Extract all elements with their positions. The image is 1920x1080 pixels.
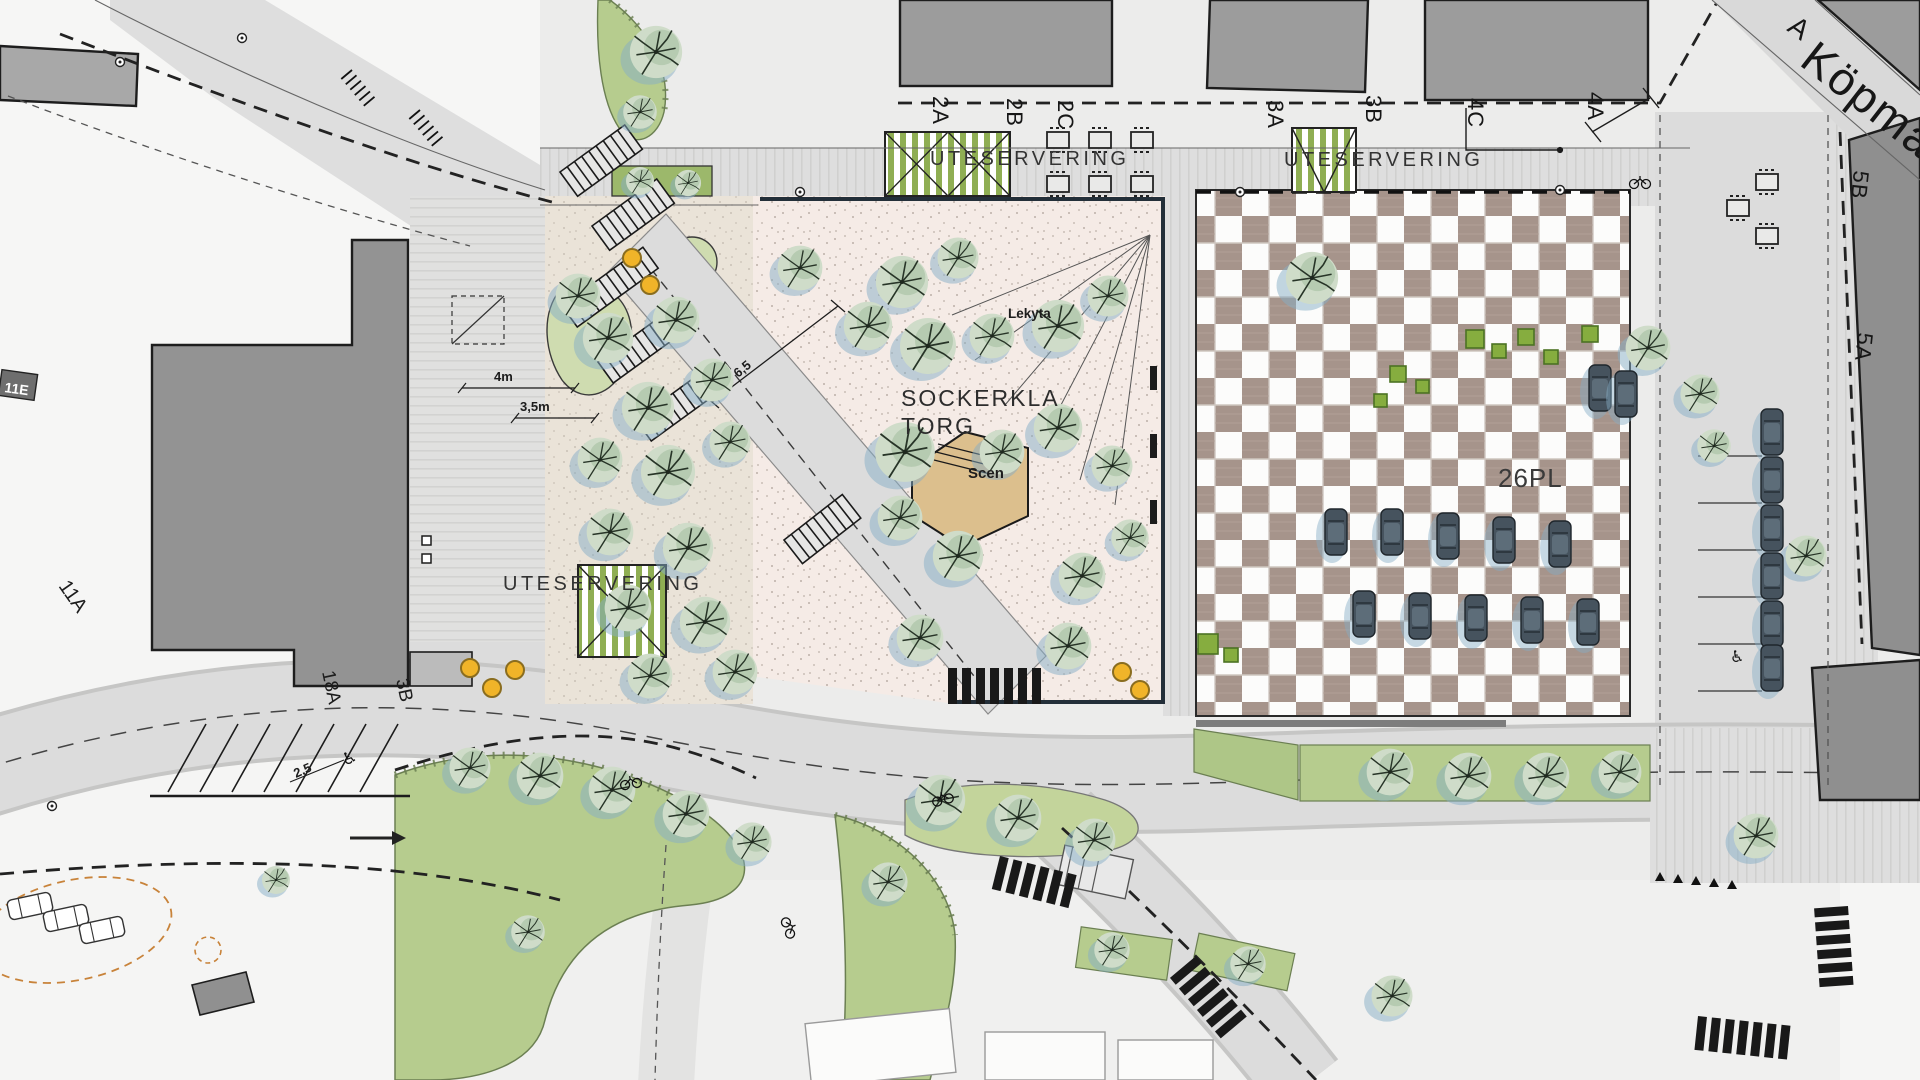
tree-trunk (956, 554, 960, 558)
car-icon (1752, 645, 1784, 699)
building-northwest (0, 46, 138, 106)
tree-trunk (674, 318, 678, 322)
car-roof (1524, 611, 1540, 630)
car-roof (1764, 519, 1780, 538)
table-top (1047, 176, 1069, 192)
building-label-2a: 2A (928, 96, 953, 125)
bench-icon (1150, 366, 1157, 390)
table-top (1089, 132, 1111, 148)
tree-trunk (1092, 838, 1095, 841)
tree-trunk (750, 840, 753, 843)
play-dot (506, 661, 524, 679)
crosswalk-stripe (948, 668, 957, 704)
play-dot (483, 679, 501, 697)
planter-box (1224, 648, 1238, 662)
tree-trunk (1754, 834, 1758, 838)
tree-trunk (610, 788, 614, 792)
crosswalk-stripe (990, 668, 999, 704)
car-icon (1372, 509, 1404, 563)
building-label-4a: 4A (1583, 92, 1608, 121)
lamp-icon (796, 188, 805, 197)
tree-trunk (900, 280, 904, 284)
tree-trunk (1129, 537, 1132, 540)
car-roof (1764, 423, 1780, 442)
outdoor-seating-label-2: UTESERVERING (1284, 149, 1483, 171)
planter-box (1390, 366, 1406, 382)
car-icon (1512, 597, 1544, 651)
tree-trunk (703, 620, 707, 624)
play-dot (1113, 663, 1131, 681)
car-roof (1496, 531, 1512, 550)
tree-trunk (626, 606, 630, 610)
tree-trunk (866, 324, 870, 328)
tree-trunk (733, 670, 737, 674)
outdoor-seating-label-3: UTESERVERING (503, 573, 702, 595)
tree-trunk (898, 516, 902, 520)
tree-trunk (710, 378, 713, 381)
table-set-icon (1089, 172, 1111, 196)
car-roof (1764, 471, 1780, 490)
table-top (1131, 132, 1153, 148)
car-roof (1468, 609, 1484, 628)
building-label-5a: 5A (1850, 331, 1878, 362)
building-north-2 (1207, 0, 1368, 92)
tree-trunk (918, 636, 922, 640)
lamp-dot (241, 37, 244, 40)
tree-trunk (1618, 770, 1621, 773)
planter-box (1416, 380, 1429, 393)
tree-trunk (1111, 949, 1114, 952)
car-roof (1592, 379, 1608, 398)
tree-trunk (639, 180, 641, 182)
car-icon (1540, 521, 1572, 575)
tree-trunk (1000, 450, 1004, 454)
planter-box (1544, 350, 1558, 364)
table-set-icon (1756, 170, 1778, 194)
crosswalk-stripe (1004, 668, 1013, 704)
tree-trunk (1466, 774, 1470, 778)
tree-trunk (606, 336, 610, 340)
car-roof (1552, 535, 1568, 554)
car-icon (1484, 517, 1516, 571)
tree-trunk (1698, 392, 1701, 395)
tree-trunk (1247, 963, 1250, 966)
dimension-label-35m: 3,5m (520, 399, 550, 414)
play-dot-icon (1131, 681, 1149, 699)
tree-trunk (1066, 644, 1070, 648)
tree-trunk (798, 266, 802, 270)
crosswalk-stripe (962, 668, 971, 704)
table-top (1089, 176, 1111, 192)
car-icon (1344, 591, 1376, 645)
wheelchair-icon-east: ♿ (1730, 649, 1744, 666)
car-roof (1440, 527, 1456, 546)
table-set-icon (1727, 196, 1749, 220)
lamp-dot (1239, 191, 1242, 194)
play-dot-icon (461, 659, 479, 677)
tree-trunk (1390, 994, 1393, 997)
plaza-name-line2: TORG (901, 413, 975, 439)
play-dot (1131, 681, 1149, 699)
tree-trunk (990, 334, 994, 338)
tree-trunk (686, 546, 690, 550)
outdoor-seating-label-1: UTESERVERING (930, 148, 1129, 170)
tree-trunk (538, 774, 542, 778)
play-dot-icon (641, 276, 659, 294)
car-icon (1400, 593, 1432, 647)
car-roof (1328, 523, 1344, 542)
table-set-icon (1047, 172, 1069, 196)
car-icon (1568, 599, 1600, 653)
lamp-icon (48, 802, 57, 811)
building-label-2b: 2B (1002, 98, 1027, 127)
play-dot-icon (506, 661, 524, 679)
car-roof (1412, 607, 1428, 626)
parking-capacity-label: 26PL (1498, 463, 1563, 493)
car-icon (1752, 409, 1784, 463)
tree-trunk (956, 256, 959, 259)
building-label-11e: 11E (4, 379, 30, 398)
tree-trunk (1080, 574, 1084, 578)
tree-trunk (687, 182, 689, 184)
bench-icon (1150, 500, 1157, 524)
planter-box (1582, 326, 1598, 342)
car-roof (1356, 605, 1372, 624)
car-icon (1752, 505, 1784, 559)
stage-label: Scen (968, 465, 1004, 482)
planter-box (1198, 634, 1218, 654)
building-label-5b: 5B (1846, 169, 1874, 200)
crosswalk-stripe (1032, 668, 1041, 704)
site-plan-drawing: Köpma A UTESERVERING UTESERVERING UTESER… (0, 0, 1920, 1080)
tree-trunk (608, 530, 612, 534)
building-label-3b: 3B (1361, 95, 1386, 124)
car-icon (1428, 513, 1460, 567)
table-top (1727, 200, 1749, 216)
tree-trunk (275, 879, 277, 881)
tree-trunk (527, 931, 530, 934)
tree-trunk (576, 294, 580, 298)
planter-box (1374, 394, 1387, 407)
table-top (1047, 132, 1069, 148)
tree-trunk (654, 50, 658, 54)
tree-trunk (598, 458, 602, 462)
car-icon (1752, 457, 1784, 511)
tree-trunk (1056, 324, 1060, 328)
lamp-icon (116, 58, 125, 67)
planter-box (1518, 329, 1534, 345)
bin-icon (422, 554, 431, 563)
table-top (1756, 228, 1778, 244)
lamp-dot (1559, 189, 1562, 192)
play-dot (641, 276, 659, 294)
play-dot-icon (623, 249, 641, 267)
building-outline-south-1 (985, 1032, 1105, 1080)
planter-box (1492, 344, 1506, 358)
tree-trunk (1646, 346, 1650, 350)
paving-strip-plaza-east (1163, 196, 1196, 716)
building-north-1 (900, 0, 1112, 86)
tree-trunk (1310, 276, 1314, 280)
tree-trunk (1544, 774, 1548, 778)
car-roof (1618, 385, 1634, 404)
tree-trunk (1804, 554, 1807, 557)
dimension-label-4m: 4m (494, 369, 513, 384)
building-north-3 (1425, 0, 1648, 100)
tree-trunk (903, 450, 908, 455)
plaza-name-line1: SOCKERKLA (901, 385, 1060, 411)
car-icon (1606, 371, 1638, 425)
lamp-dot (799, 191, 802, 194)
building-label-2c: 2C (1053, 100, 1078, 130)
table-top (1756, 174, 1778, 190)
tree-trunk (1106, 294, 1109, 297)
lamp-icon (1556, 186, 1565, 195)
parking-plaza (1194, 190, 1650, 801)
play-dot (623, 249, 641, 267)
car-roof (1764, 567, 1780, 586)
car-icon (1456, 595, 1488, 649)
tree-trunk (684, 812, 688, 816)
tree-trunk (1016, 816, 1020, 820)
car-roof (1580, 613, 1596, 632)
crosswalk-stripe (1018, 668, 1027, 704)
play-dot-icon (483, 679, 501, 697)
tree-trunk (639, 111, 642, 114)
table-set-icon (1131, 128, 1153, 152)
tree-trunk (1056, 426, 1060, 430)
tree-trunk (666, 470, 670, 474)
building-label-4c: 4C (1463, 98, 1488, 128)
table-set-icon (1756, 224, 1778, 248)
planter-box (1466, 330, 1484, 348)
site-plan-canvas: Köpma A UTESERVERING UTESERVERING UTESER… (0, 0, 1920, 1080)
play-dot (461, 659, 479, 677)
building-label-3a: 3A (1263, 100, 1288, 129)
tree-trunk (1713, 445, 1716, 448)
tree-trunk (468, 766, 471, 769)
building-outline-south-2 (1118, 1040, 1213, 1080)
tree-trunk (926, 344, 930, 348)
seat-wall (1196, 720, 1506, 727)
play-area-label: Lekyta (1008, 306, 1051, 321)
tree-trunk (646, 406, 650, 410)
play-dot-icon (1113, 663, 1131, 681)
crosswalk-stripe (976, 668, 985, 704)
car-roof (1384, 523, 1400, 542)
lamp-dot (119, 61, 122, 64)
tree-trunk (886, 880, 889, 883)
tree-trunk (1388, 770, 1392, 774)
car-icon (1316, 509, 1348, 563)
lamp-dot (51, 805, 54, 808)
lamp-icon (238, 34, 247, 43)
tree-trunk (648, 674, 652, 678)
bench-icon (1150, 434, 1157, 458)
tree-trunk (728, 440, 731, 443)
car-roof (1764, 659, 1780, 678)
table-top (1131, 176, 1153, 192)
table-set-icon (1131, 172, 1153, 196)
bin-icon (422, 536, 431, 545)
tree-trunk (1110, 464, 1113, 467)
lamp-icon (1236, 188, 1245, 197)
car-roof (1764, 615, 1780, 634)
car-icon (1752, 553, 1784, 607)
building-label-11e-group: 11E (0, 370, 38, 401)
